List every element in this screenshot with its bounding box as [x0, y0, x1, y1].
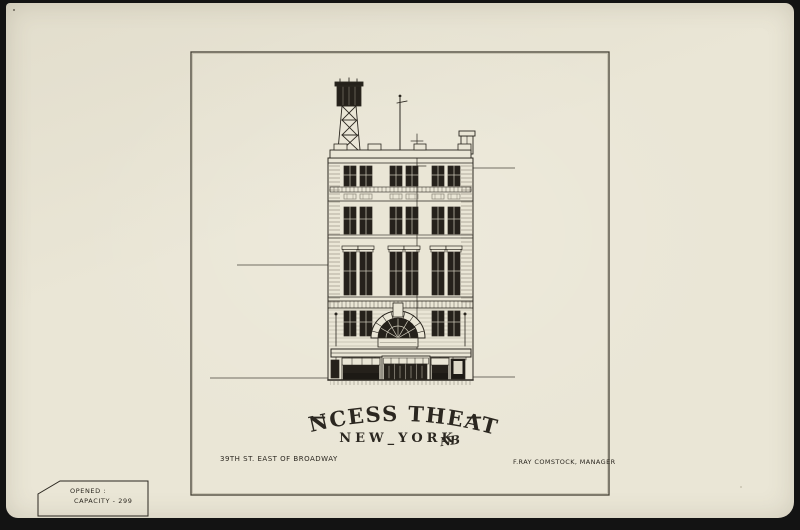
- photographed-drawing: PRINCESS THEATRE — — NEW_YORK NB 39TH ST…: [0, 0, 800, 530]
- right-pier-rustication: [461, 163, 473, 303]
- flagpole-finial: [399, 95, 402, 98]
- keystone: [393, 303, 403, 317]
- signature-monogram: NB: [439, 433, 460, 450]
- left-storefront: [342, 358, 380, 380]
- right-storefront: [431, 358, 449, 380]
- manager-label: F.RAY COMSTOCK, MANAGER: [513, 458, 616, 466]
- tank-cap: [335, 82, 363, 86]
- parapet-post: [414, 144, 426, 150]
- parapet-post: [458, 144, 471, 150]
- corner-label-opened: OPENED :: [70, 487, 106, 495]
- corner-label-capacity: CAPACITY - 299: [74, 497, 133, 505]
- left-pier-rustication: [328, 163, 340, 303]
- dentil-band: [330, 187, 471, 192]
- ground-floor: [331, 356, 465, 380]
- parapet-post: [334, 144, 347, 150]
- sidewalk-hatch: [330, 381, 471, 385]
- title-dash-left: —: [310, 407, 326, 426]
- left-poster-board: [331, 360, 339, 378]
- flagpole: [397, 95, 407, 158]
- fifth-floor-windows: [344, 207, 460, 234]
- fourth-floor-windows: [344, 252, 460, 295]
- parapet-post: [368, 144, 381, 150]
- sixth-floor-windows: [344, 166, 460, 186]
- entrance-doors: [382, 356, 430, 380]
- address-label: 39TH ST. EAST OF BROADWAY: [220, 455, 338, 463]
- elevation-drawing: PRINCESS THEATRE — —: [0, 0, 800, 530]
- building-elevation: [328, 78, 475, 385]
- title-dash-right: —: [466, 407, 482, 426]
- water-tank-tower: [335, 78, 363, 150]
- right-poster-board: [451, 359, 465, 379]
